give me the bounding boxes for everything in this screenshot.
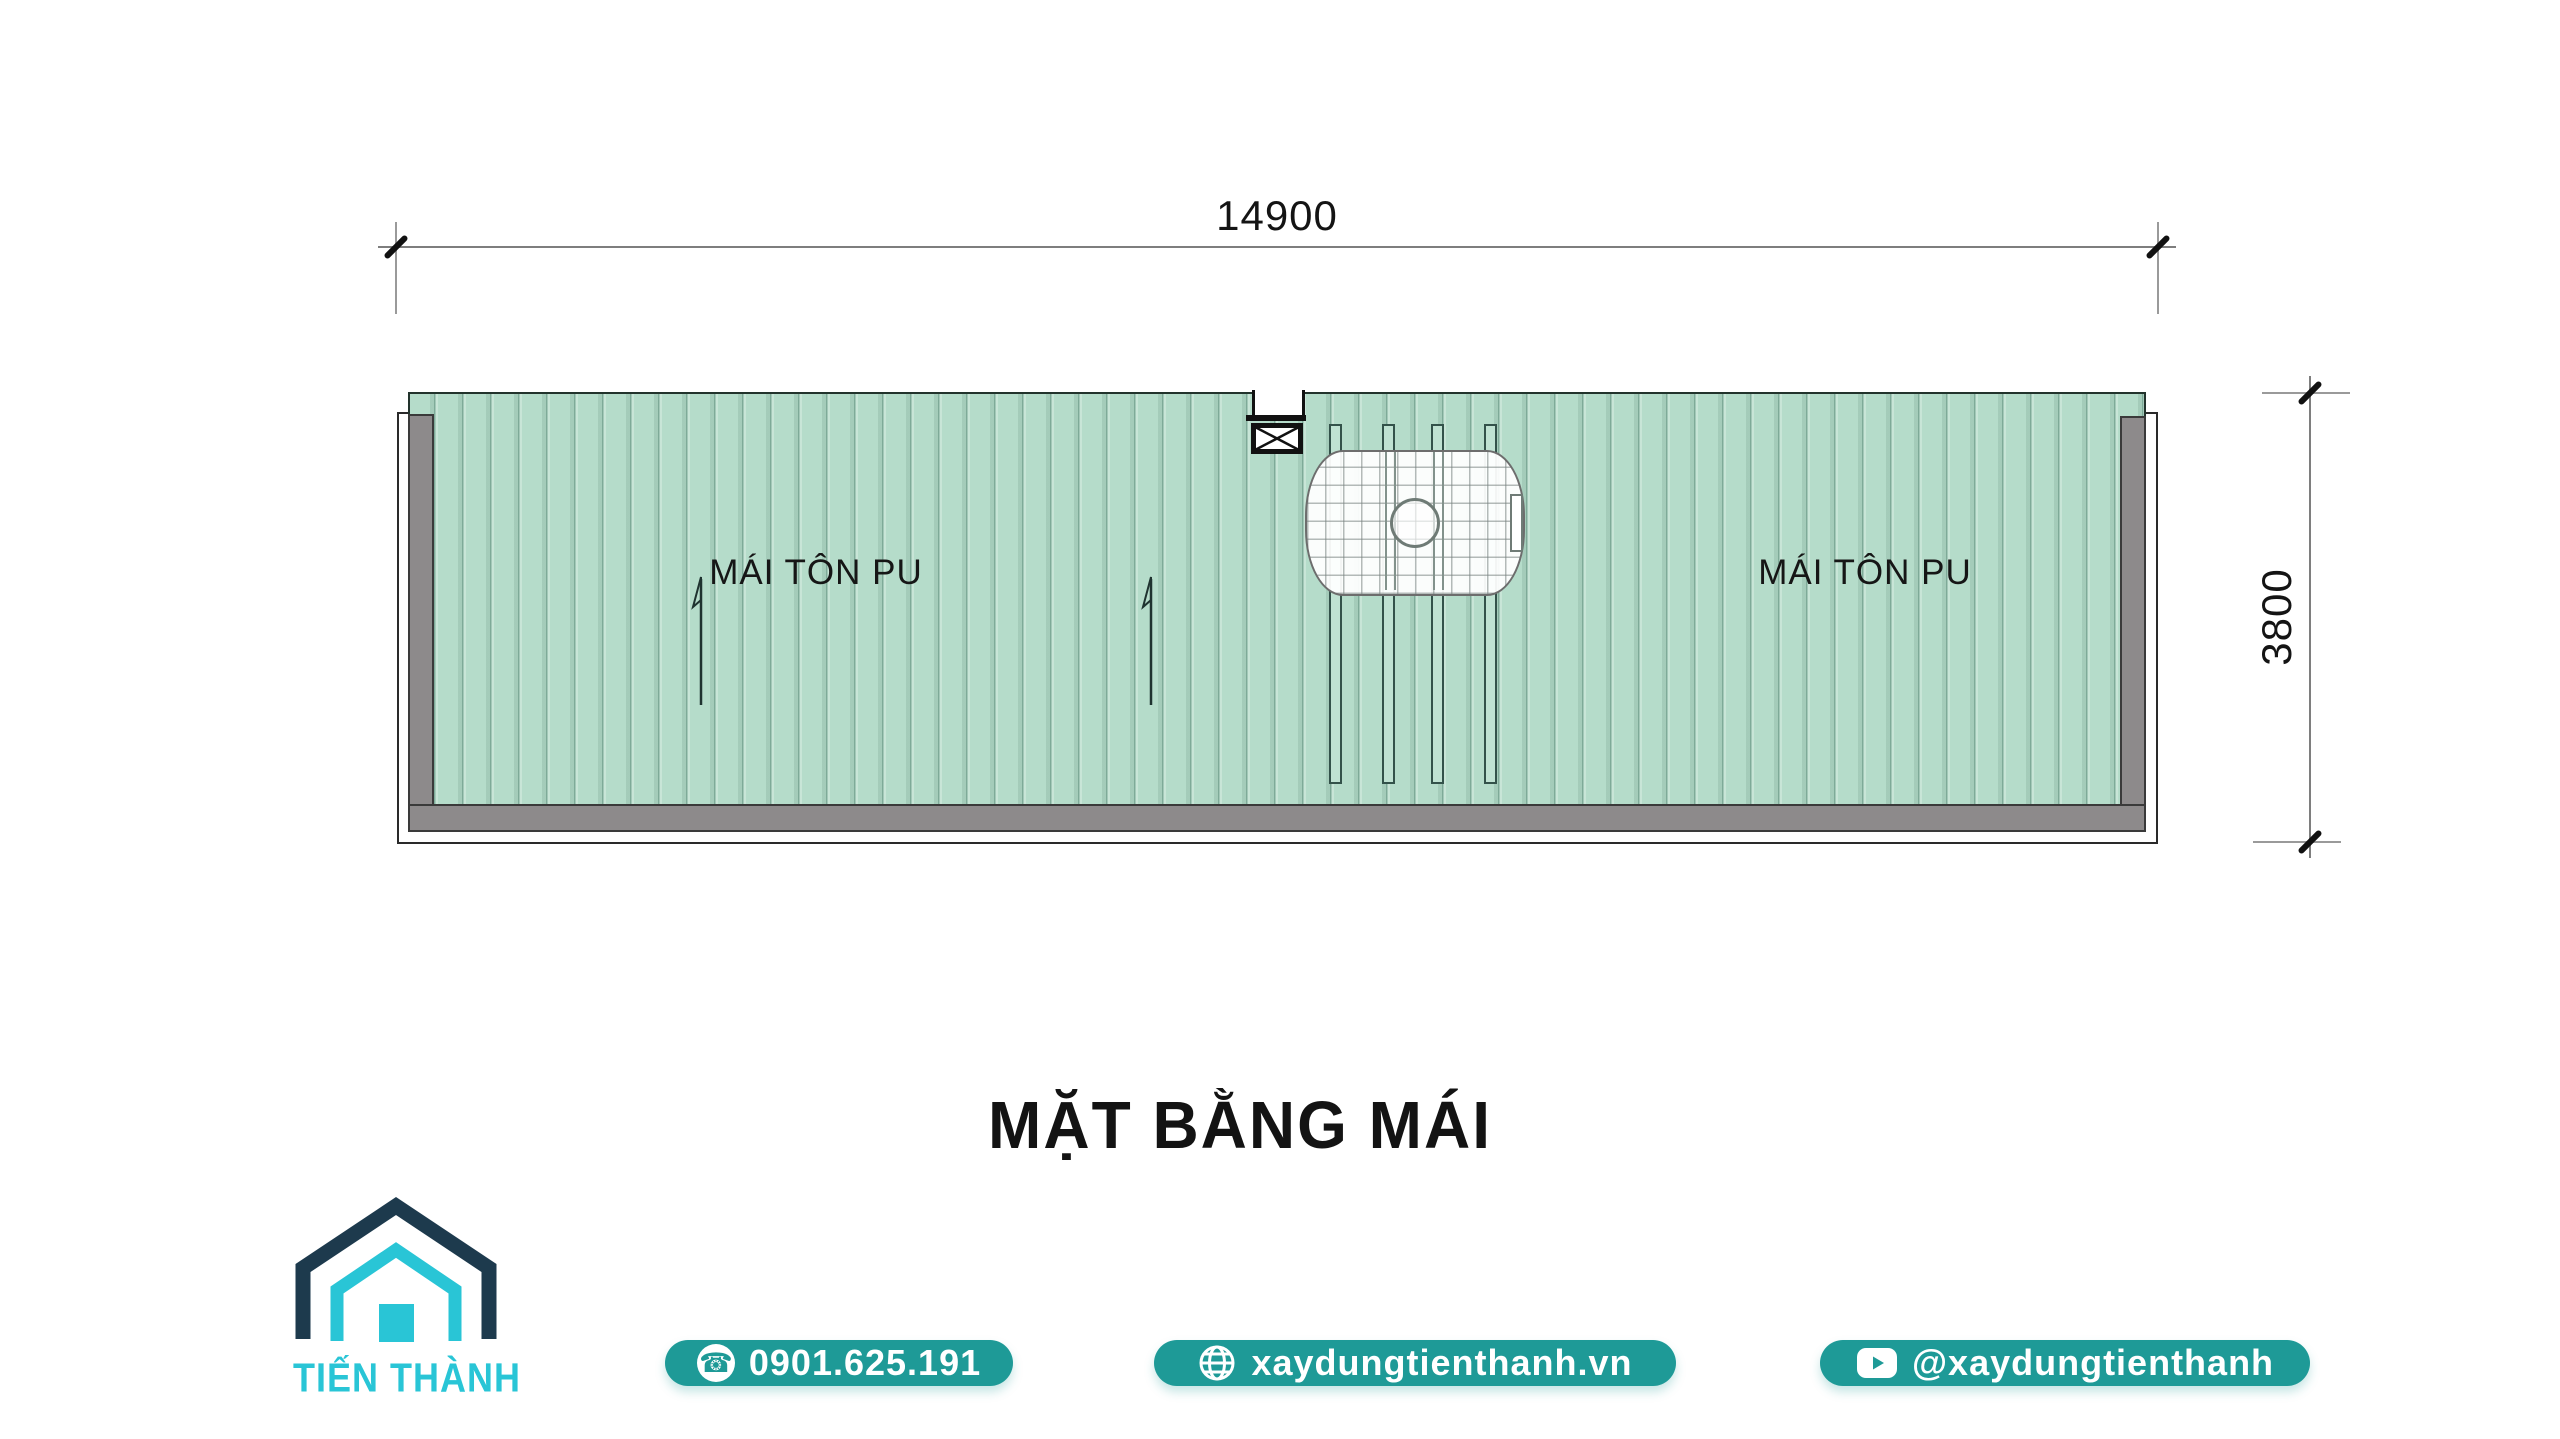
dimension-top-label: 14900 xyxy=(1216,192,1338,240)
parapet-left xyxy=(408,414,434,832)
social-button[interactable]: @xaydungtienthanh xyxy=(1820,1340,2310,1386)
roof-notch xyxy=(1252,390,1305,416)
dimension-right-label: 3800 xyxy=(2253,568,2301,665)
company-name: TIẾN THÀNH xyxy=(293,1354,499,1401)
extension-line xyxy=(395,222,397,314)
youtube-icon xyxy=(1856,1347,1898,1379)
water-tank xyxy=(1305,450,1525,596)
roof-label-left: MÁI TÔN PU xyxy=(709,553,923,593)
house-logo-icon xyxy=(293,1196,499,1346)
dimension-line xyxy=(378,246,2176,248)
website-button[interactable]: xaydungtienthanh.vn xyxy=(1154,1340,1676,1386)
hatch-bar xyxy=(1246,415,1306,421)
slope-arrow-left xyxy=(689,575,713,707)
phone-button[interactable]: ☎ 0901.625.191 xyxy=(665,1340,1013,1386)
phone-label: 0901.625.191 xyxy=(749,1342,981,1384)
roof-surface xyxy=(408,392,2146,808)
tank-manhole xyxy=(1390,498,1440,548)
social-label: @xaydungtienthanh xyxy=(1912,1342,2274,1384)
roof-plan-page: 14900 3800 M xyxy=(0,0,2560,1439)
globe-icon xyxy=(1197,1343,1237,1383)
company-logo: TIẾN THÀNH xyxy=(293,1196,499,1399)
extension-line xyxy=(2253,841,2341,843)
phone-icon: ☎ xyxy=(697,1344,735,1382)
roof-label-right: MÁI TÔN PU xyxy=(1758,553,1972,593)
dimension-line xyxy=(2309,376,2311,858)
tank-outlet xyxy=(1510,494,1523,552)
slope-arrow-center xyxy=(1139,575,1163,707)
parapet-right xyxy=(2120,416,2146,832)
drawing-title: MẶT BẰNG MÁI xyxy=(988,1087,1492,1164)
website-label: xaydungtienthanh.vn xyxy=(1251,1342,1632,1384)
extension-line xyxy=(2157,222,2159,314)
roof-hatch-icon xyxy=(1251,423,1303,454)
parapet-bottom xyxy=(408,804,2146,832)
